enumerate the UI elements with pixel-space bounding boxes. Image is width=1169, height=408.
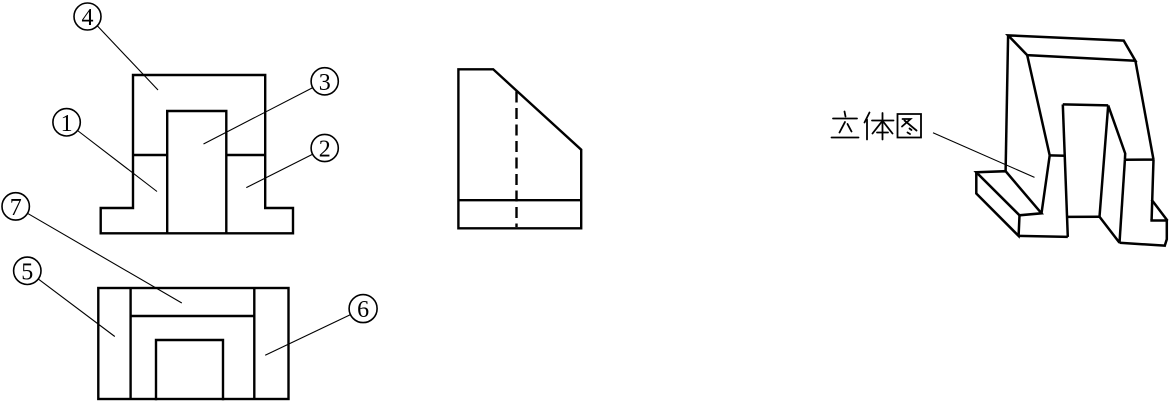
svg-text:6: 6 bbox=[357, 297, 369, 323]
svg-text:4: 4 bbox=[82, 5, 94, 31]
svg-text:7: 7 bbox=[10, 195, 22, 221]
svg-text:3: 3 bbox=[319, 70, 331, 96]
svg-text:1: 1 bbox=[61, 111, 73, 137]
svg-text:2: 2 bbox=[319, 137, 331, 163]
svg-text:5: 5 bbox=[21, 259, 33, 285]
